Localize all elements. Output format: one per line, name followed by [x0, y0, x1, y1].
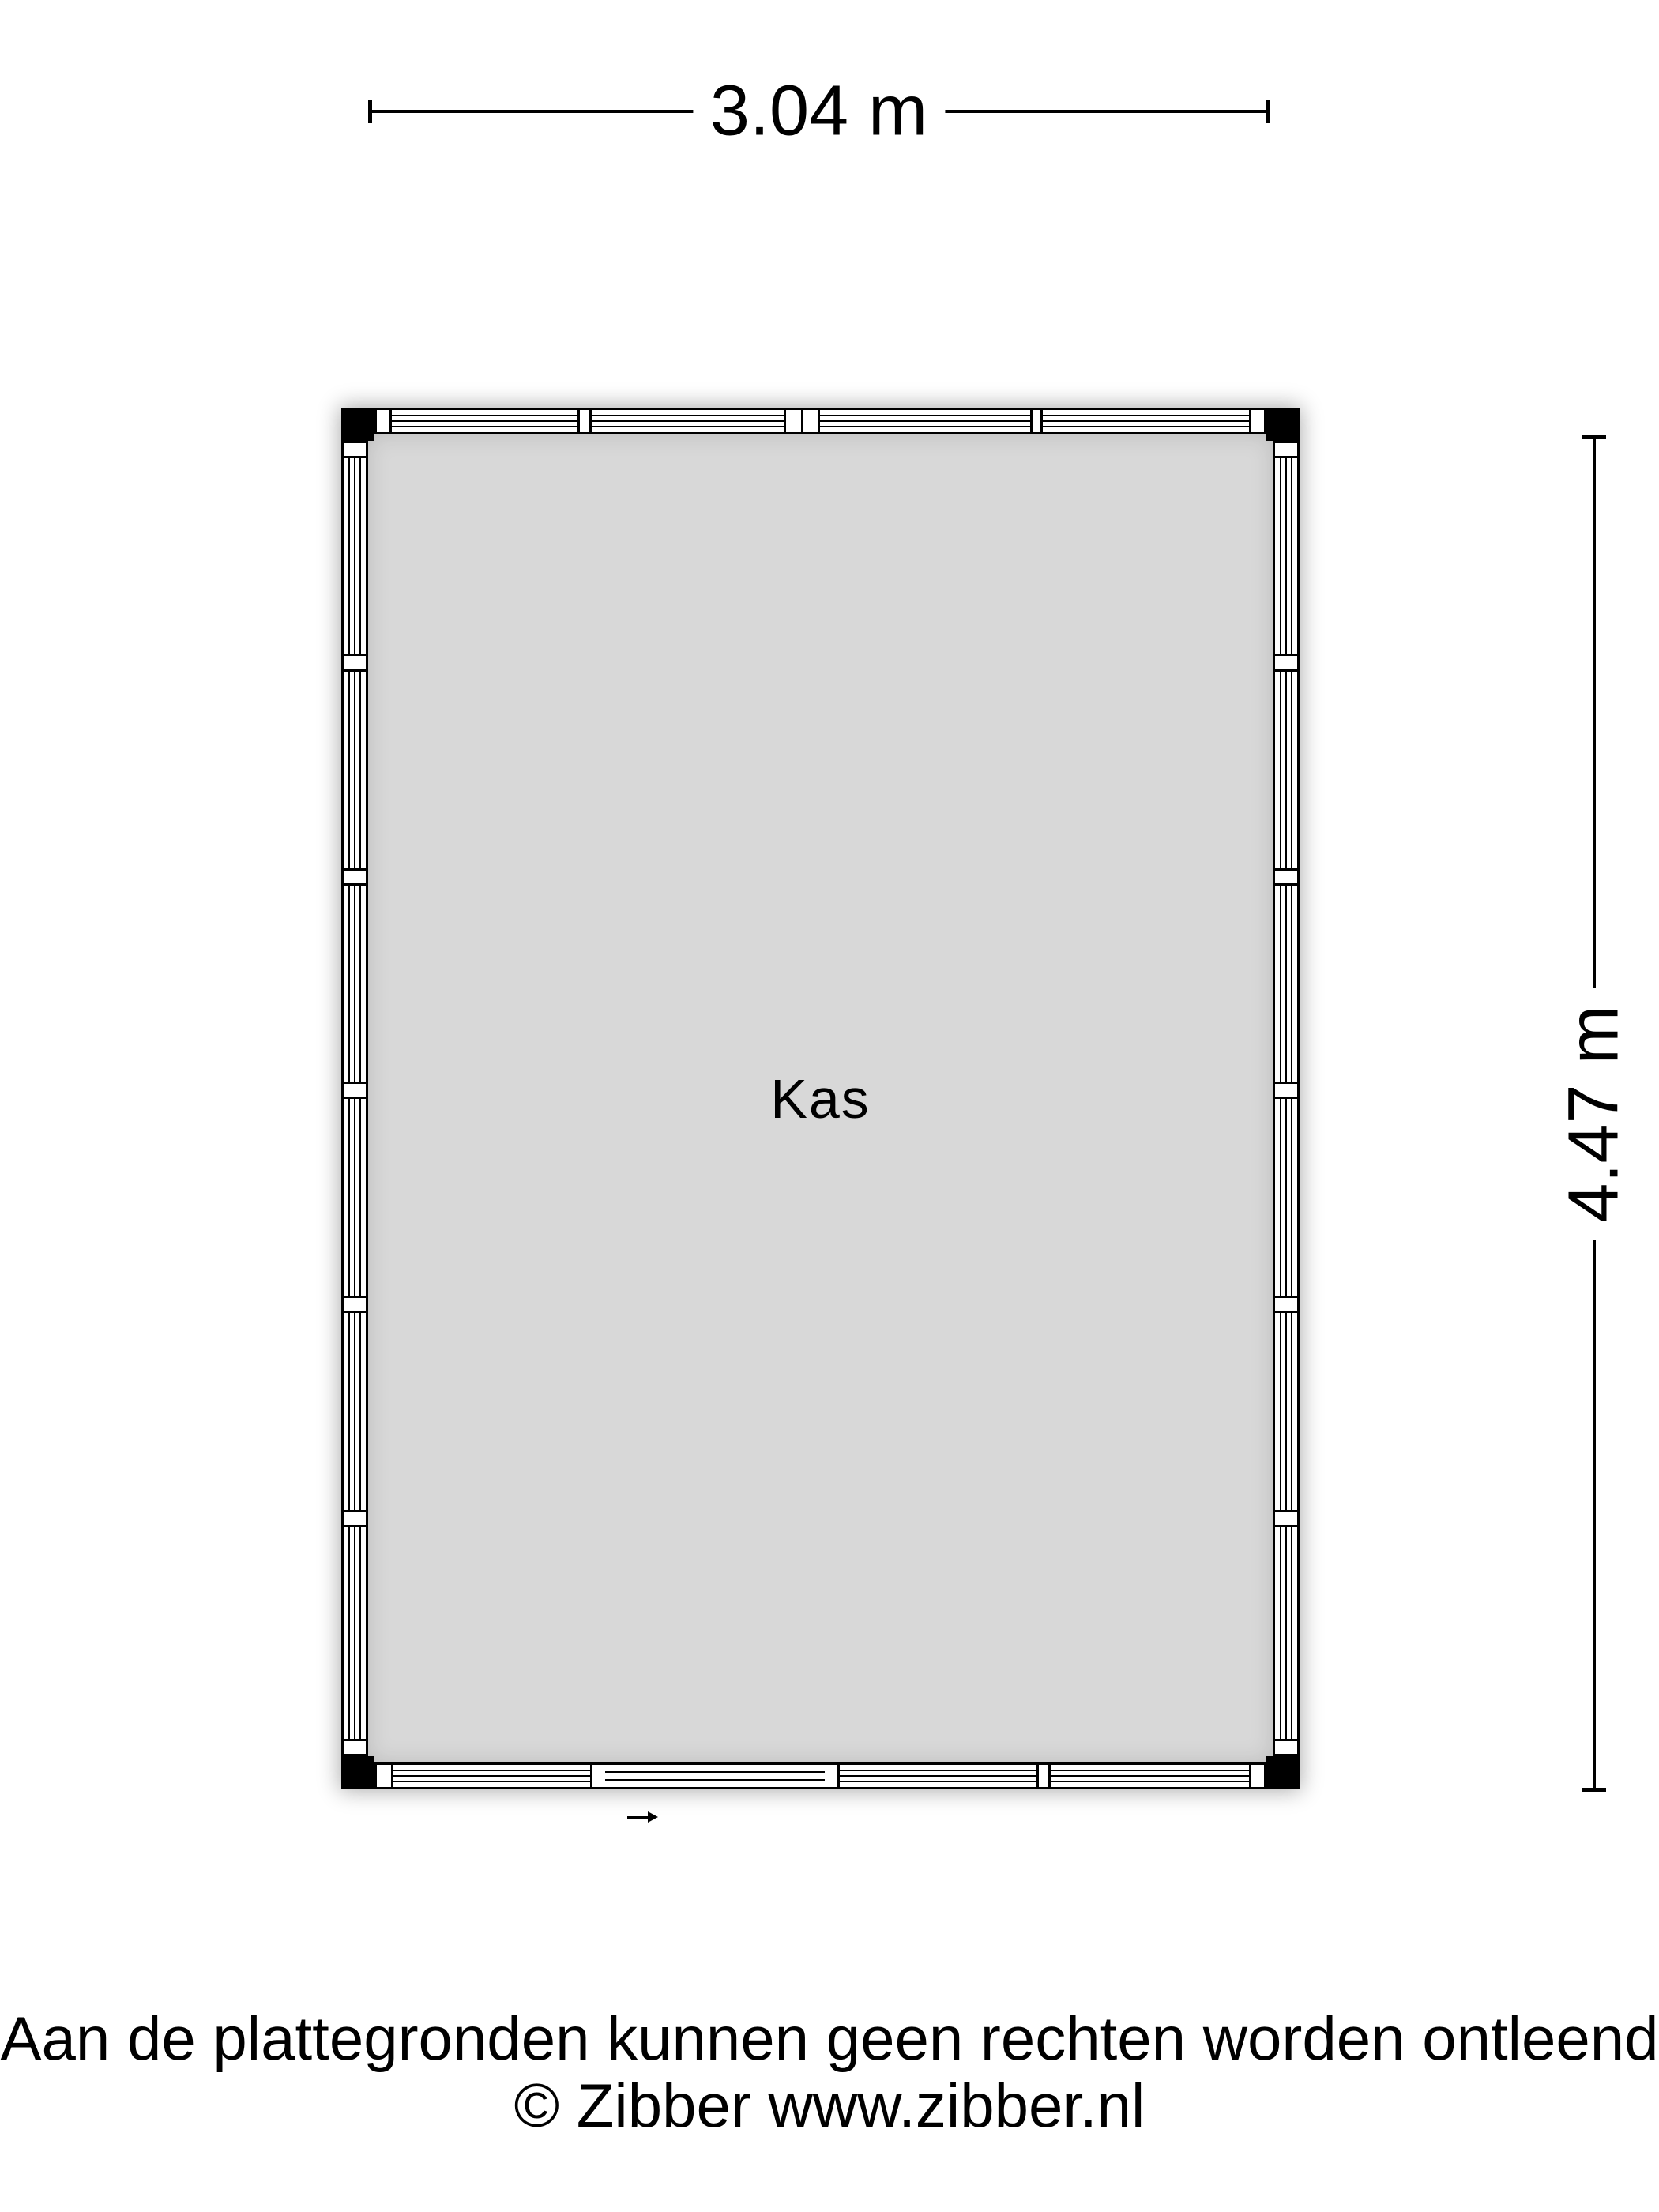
window-mullion	[1275, 1296, 1297, 1313]
window-mullion	[1249, 1765, 1266, 1787]
corner-post	[341, 408, 374, 441]
corner-post	[341, 1756, 374, 1789]
width-dimension-label: 3.04 m	[693, 71, 945, 152]
footer: Aan de plattegronden kunnen geen rechten…	[0, 2005, 1659, 2139]
wall-left	[341, 408, 368, 1789]
window-mullion	[344, 654, 366, 671]
dimension-tick	[1266, 100, 1270, 123]
floor-plan-page: 3.04 m 4.47 m	[0, 0, 1659, 2212]
window-mullion	[577, 410, 592, 432]
corner-post	[1266, 1756, 1300, 1789]
window-mullion	[344, 1739, 366, 1756]
window-mullion	[1030, 410, 1043, 432]
window-mullion	[1275, 654, 1297, 671]
window-mullion	[374, 410, 392, 432]
window-mullion	[1275, 1510, 1297, 1527]
height-dimension: 4.47 m	[1575, 435, 1613, 1792]
footer-disclaimer: Aan de plattegronden kunnen geen rechten…	[0, 2005, 1659, 2072]
door-segment	[590, 1765, 840, 1787]
window-mullion	[1275, 868, 1297, 886]
window-mullion	[1036, 1765, 1051, 1787]
window-mullion	[344, 868, 366, 886]
window-mullion	[1275, 1739, 1297, 1756]
room-label: Kas	[368, 434, 1273, 1762]
footer-copyright: © Zibber www.zibber.nl	[0, 2072, 1659, 2139]
window-mullion	[1275, 1082, 1297, 1099]
corner-post	[1266, 408, 1300, 441]
window-mullion	[344, 1296, 366, 1313]
window-mullion	[344, 1082, 366, 1099]
width-dimension: 3.04 m	[368, 76, 1270, 147]
height-dimension-label: 4.47 m	[1554, 987, 1635, 1240]
window-mullion	[1275, 441, 1297, 458]
window-mullion	[374, 1765, 393, 1787]
window-mullion	[344, 1510, 366, 1527]
window-mullion	[344, 441, 366, 458]
wall-bottom	[341, 1762, 1300, 1789]
entrance-arrow-icon	[627, 1811, 659, 1823]
wall-right	[1273, 408, 1300, 1789]
dimension-tick	[1582, 1788, 1606, 1792]
window-mullion	[1249, 410, 1266, 432]
wall-top	[341, 408, 1300, 434]
floor-plan: Kas	[341, 408, 1300, 1789]
window-mullion	[784, 410, 820, 432]
